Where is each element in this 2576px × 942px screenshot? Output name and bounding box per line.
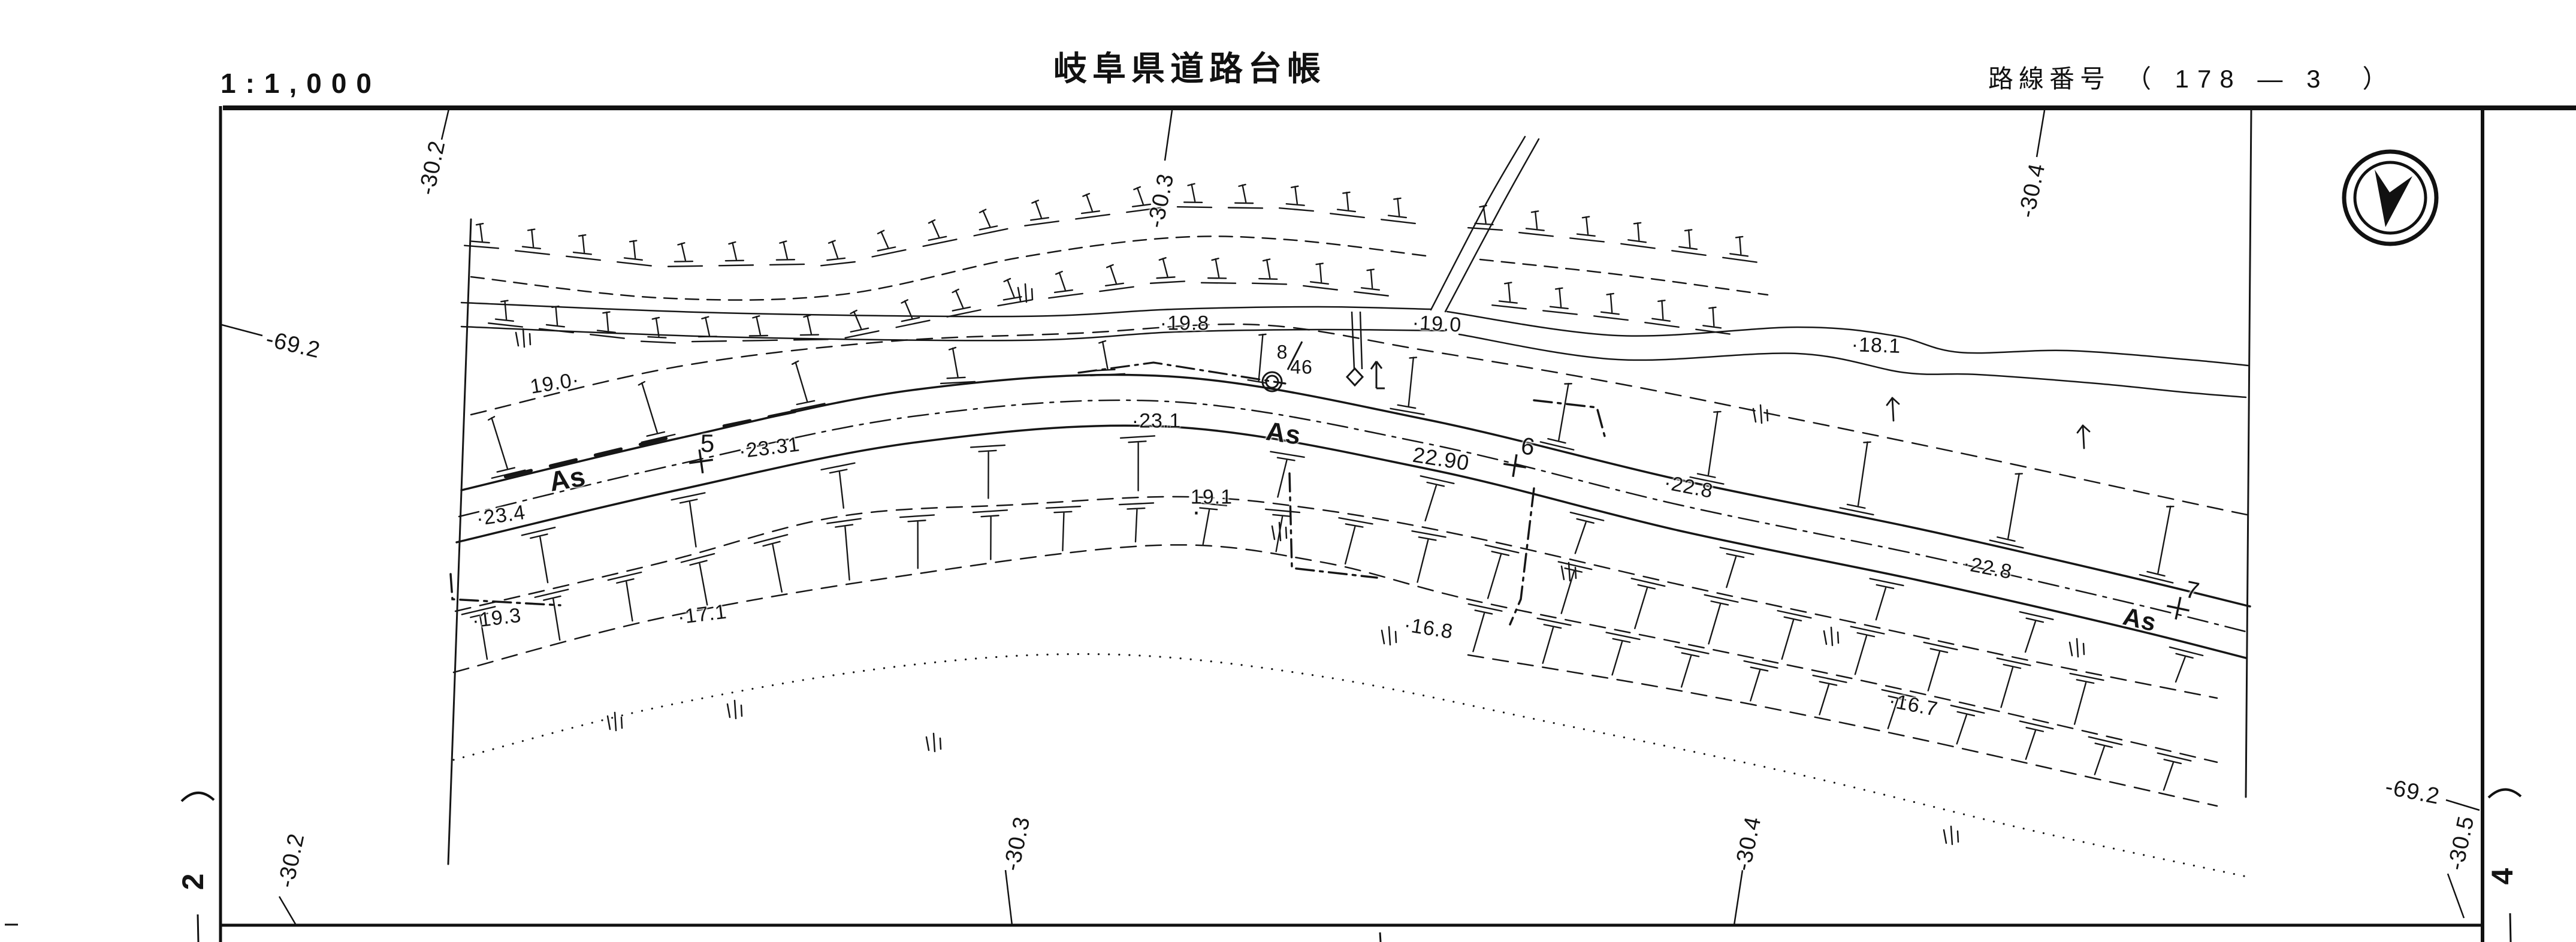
slope-tie-icon xyxy=(1943,705,1984,748)
slope-tie-icon xyxy=(1668,647,1709,691)
slope-tie-icon xyxy=(668,243,702,267)
slope-tie-icon xyxy=(718,241,753,265)
slope-tie-icon xyxy=(1529,618,1571,668)
slope-tie-icon xyxy=(1228,185,1263,209)
slope-tie-icon xyxy=(793,315,828,340)
slope-tie-icon xyxy=(478,413,525,478)
slope-tie-icon xyxy=(1990,470,2039,548)
boundary-dash-dot xyxy=(1510,488,1534,624)
slope-tie-icon xyxy=(970,206,1008,236)
slope-tie-icon xyxy=(1594,292,1630,320)
slope-tie-icon xyxy=(617,238,654,265)
north-arrow-icon xyxy=(2344,152,2436,244)
utility-pole-lines xyxy=(1352,312,1362,369)
slope-tie-icon xyxy=(1073,191,1110,219)
station-number: 5 xyxy=(700,429,715,458)
slope-tie-icon xyxy=(1459,604,1502,656)
slope-tie-icon xyxy=(1046,506,1082,551)
slope-tie-icon xyxy=(1768,611,1811,663)
pavement-edge-tick xyxy=(769,412,795,417)
slope-tie-icon xyxy=(919,216,957,246)
frame-tick xyxy=(1380,932,1381,942)
slope-tie-icon xyxy=(1097,262,1134,291)
boundary-dash-dot xyxy=(1289,473,1377,578)
slope-tie-icon xyxy=(769,241,804,265)
elevation-tick xyxy=(2037,110,2045,157)
slope-tie-icon xyxy=(566,233,603,260)
slope-tie-icon xyxy=(868,227,906,257)
slope-tie-icon xyxy=(1119,503,1155,542)
sheet-number-left: 2 xyxy=(176,873,210,890)
slope-tie-icon xyxy=(1690,408,1738,484)
slope-tie-icon xyxy=(608,572,652,624)
spot-height: ·18.1 xyxy=(1851,333,1901,358)
elevation-tick xyxy=(2448,874,2464,918)
sheet-ref-paren-right xyxy=(2489,789,2521,798)
parcel-number-numerator: 8 xyxy=(1277,342,1288,364)
slope-tie-icon xyxy=(1331,518,1372,567)
slope-tie-icon xyxy=(1390,355,1433,415)
elevation-tick xyxy=(1734,870,1743,925)
slope-tie-icon xyxy=(1621,221,1658,248)
embankment-dashed-line xyxy=(1480,259,1768,295)
station-cross xyxy=(687,448,2191,621)
slope-tie-icon xyxy=(641,317,677,343)
slope-tie-icon xyxy=(1264,452,1304,500)
parcel-number-denominator: 46 xyxy=(1290,357,1313,379)
slope-tie-icon xyxy=(939,346,975,383)
frame-tick xyxy=(2510,913,2511,942)
elevation-leader xyxy=(2446,800,2480,810)
elevation-leader xyxy=(222,325,262,336)
channel-north-bank xyxy=(1447,312,2248,366)
branch-road-east-edge xyxy=(1445,139,1539,312)
slope-tie-icon xyxy=(2080,737,2122,779)
slope-tie-icon xyxy=(827,519,869,582)
grass-tuft-icon xyxy=(1272,523,1287,541)
elevation-tick xyxy=(279,896,295,924)
slope-tie-icon xyxy=(782,358,825,410)
slope-tie-icon xyxy=(2150,753,2191,795)
slope-tie-icon xyxy=(900,515,938,569)
street-lamp-icon xyxy=(1371,361,1385,388)
spot-height: ·23.1 xyxy=(1132,410,1182,433)
slope-tie-icon xyxy=(840,307,878,338)
slope-tie-icon xyxy=(2012,721,2053,763)
slope-tie-icon xyxy=(1598,632,1639,678)
slope-tie-icon xyxy=(1987,658,2030,711)
boundary-dash-dot xyxy=(1534,400,1605,436)
row-dashed-line-south-3 xyxy=(1468,655,2217,806)
slope-tie-icon xyxy=(672,493,715,549)
survey-strip-right-edge xyxy=(2246,110,2251,797)
slope-tie-icon xyxy=(1403,531,1446,585)
slope-tie-icon xyxy=(1862,579,1903,624)
slope-tie-icon xyxy=(629,378,675,442)
slope-tie-icon xyxy=(1046,269,1083,298)
frame-tick xyxy=(198,914,198,942)
slope-tie-icon xyxy=(1695,595,1738,648)
slope-tie-icon xyxy=(1840,439,1888,515)
slope-tie-icon xyxy=(1201,258,1236,283)
slope-tie-icon xyxy=(1022,198,1059,226)
grass-tuft-icon xyxy=(1824,627,1838,645)
slope-tie-icon xyxy=(754,535,801,595)
slope-tie-icon xyxy=(1121,436,1158,491)
slope-tie-icon xyxy=(539,304,576,333)
slope-tie-icon xyxy=(488,299,525,327)
slope-tie-icon xyxy=(1474,545,1519,603)
surface-label-as: As xyxy=(546,460,588,498)
slope-tie-icon xyxy=(1411,476,1454,525)
slope-tie-icon xyxy=(1303,261,1340,289)
slope-tie-icon xyxy=(1492,280,1529,309)
slope-tie-icon xyxy=(822,463,863,511)
slope-tie-icon xyxy=(1519,209,1556,236)
slope-tie-icon xyxy=(1354,267,1391,295)
slope-tie-icon xyxy=(522,527,567,585)
grass-tuft-icon xyxy=(727,701,742,718)
sheet-ref-paren-left xyxy=(182,793,214,801)
slope-tie-icon xyxy=(1541,380,1589,450)
slope-tie-icon xyxy=(1621,578,1665,633)
road-center-line xyxy=(459,400,2248,632)
elevation-tick xyxy=(1005,870,1012,925)
slope-tie-icon xyxy=(1543,286,1580,315)
slope-tie-icon xyxy=(1570,215,1606,242)
row-dashed-line-south-2 xyxy=(454,545,2217,762)
slope-tie-icon xyxy=(535,590,579,644)
slope-tie-icon xyxy=(1645,298,1682,327)
slope-tie-icon xyxy=(971,445,1008,499)
slope-tie-icon xyxy=(1696,305,1733,334)
grass-tuft-icon xyxy=(1018,284,1032,302)
slope-tie-icon xyxy=(2061,674,2104,728)
slope-tie-icon xyxy=(1381,197,1418,224)
slope-tie-icon xyxy=(1914,642,1957,695)
surface-label-as: As xyxy=(1264,416,1303,451)
spot-height-dot: · xyxy=(1192,497,1201,527)
slope-tie-icon xyxy=(1279,185,1315,211)
slope-tie-icon xyxy=(1805,675,1846,718)
grass-tuft-icon xyxy=(516,329,530,347)
spot-height: ·19.8 xyxy=(1160,312,1210,336)
survey-marker-square-icon xyxy=(1347,369,1363,385)
slope-tie-icon xyxy=(1672,228,1709,255)
map-canvas xyxy=(0,0,2576,942)
grass-tuft-icon xyxy=(1382,627,1396,645)
manhole-circle-icon xyxy=(1263,372,1282,391)
grass-tuft-icon xyxy=(2070,639,2084,657)
flow-arrow-icon xyxy=(2077,425,2089,448)
row-dashed-line-south-1 xyxy=(455,497,2217,698)
slope-tie-icon xyxy=(1723,234,1760,262)
slope-tie-icon xyxy=(2012,612,2053,656)
slope-tie-icon xyxy=(1330,191,1367,218)
slope-tie-icon xyxy=(1562,512,1604,558)
elevation-tick xyxy=(1165,110,1172,161)
slope-tie-icon xyxy=(691,316,726,342)
slope-tie-icon xyxy=(819,238,855,265)
slope-tie-icon xyxy=(1177,183,1212,207)
elevation-tick xyxy=(442,109,449,140)
grass-tuft-icon xyxy=(608,712,622,730)
slope-tie-icon xyxy=(891,297,929,328)
slope-tie-icon xyxy=(1262,509,1300,554)
slope-tie-icon xyxy=(1841,627,1884,679)
slope-tie-icon xyxy=(1149,256,1185,283)
grass-tuft-icon xyxy=(1944,826,1958,844)
road-register-sheet: 1:1,000 岐阜県道路台帳 路線番号（ 178 — 3 ） xyxy=(0,0,2576,942)
slope-tie-icon xyxy=(1737,661,1778,705)
embankment-dashed-line xyxy=(471,236,1431,300)
sheet-number-right: 4 xyxy=(2485,868,2520,885)
flow-arrow-icon xyxy=(1887,398,1899,421)
slope-tie-icon xyxy=(973,510,1010,560)
slope-tie-icon xyxy=(942,286,980,317)
dotted-boundary-line xyxy=(454,654,2244,876)
slope-tie-icon xyxy=(1713,548,1754,591)
grass-tuft-icon xyxy=(926,733,941,751)
slope-tie-icon xyxy=(2140,503,2191,583)
spot-height: ·19.0 xyxy=(1412,311,1462,337)
slope-tie-icon xyxy=(1252,259,1287,285)
slope-tie-icon xyxy=(515,228,552,255)
slope-tie-icon xyxy=(2162,647,2203,687)
grass-tuft-icon xyxy=(1753,405,1768,423)
